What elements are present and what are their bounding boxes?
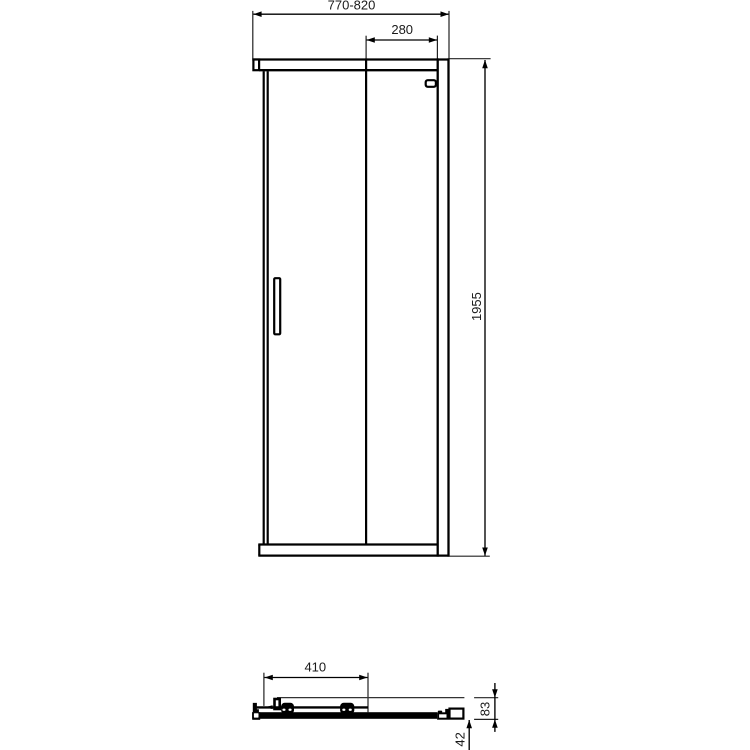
svg-text:83: 83 bbox=[477, 702, 492, 716]
svg-text:770-820: 770-820 bbox=[328, 0, 376, 12]
svg-text:280: 280 bbox=[391, 22, 413, 37]
svg-text:42: 42 bbox=[453, 732, 468, 746]
svg-text:1955: 1955 bbox=[469, 292, 484, 321]
svg-text:410: 410 bbox=[304, 660, 326, 675]
